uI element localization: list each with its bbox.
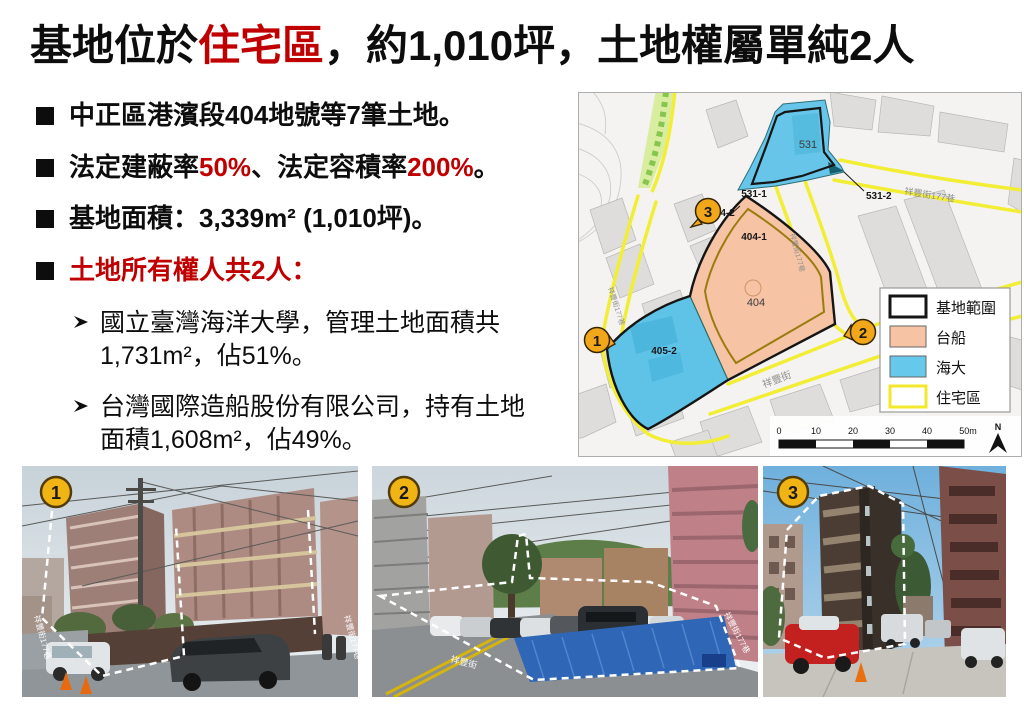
bullet-segment: 法定建蔽率 xyxy=(69,152,199,182)
label-405-2: 405-2 xyxy=(651,346,677,357)
label-404-1: 404-1 xyxy=(741,232,767,243)
scale-tick: 0 xyxy=(776,426,781,436)
title-part: 基地位於 xyxy=(30,22,198,69)
label-531: 531 xyxy=(799,139,817,151)
square-bullet-icon xyxy=(36,210,54,228)
scale-tick: 40 xyxy=(922,426,932,436)
photo-number-badge: 2 xyxy=(389,477,419,507)
arrow-bullet-icon xyxy=(72,397,90,457)
bullet-segment-red: 200% xyxy=(407,152,474,182)
photo-number-badge: 3 xyxy=(778,477,808,507)
legend-label: 海大 xyxy=(936,360,966,377)
sub-bullet-item-2: 台灣國際造船股份有限公司，持有土地 面積1,608m²，佔49%。 xyxy=(72,391,571,457)
legend-label: 住宅區 xyxy=(936,390,981,407)
street-photo-2: 祥豐街 祥豐街177巷 2 xyxy=(372,466,758,697)
square-bullet-icon xyxy=(36,262,54,280)
label-531-2: 531-2 xyxy=(866,191,892,202)
title-part: ，約1,010坪，土地權屬單純2人 xyxy=(324,22,914,69)
scale-tick: 50m xyxy=(959,426,977,436)
bullet-text: 土地所有權人共2人： xyxy=(69,255,317,286)
svg-text:N: N xyxy=(995,422,1002,432)
cadastral-map: 531 531-1 531-2 404-2 404-1 404 405-2 祥豐… xyxy=(578,92,1022,457)
slide: 基地位於住宅區，約1,010坪，土地權屬單純2人 中正區港濱段404地號等7筆土… xyxy=(0,0,1024,709)
legend-swatch-site xyxy=(890,296,926,317)
legend-label: 台船 xyxy=(936,330,966,347)
scale-bar: 0 10 20 30 40 50m N xyxy=(770,416,1022,457)
legend-swatch-csbc xyxy=(890,326,926,347)
bullet-item-2: 法定建蔽率50%、法定容積率200%。 xyxy=(36,152,571,183)
sub-bullet-line: 台灣國際造船股份有限公司，持有土地 xyxy=(100,393,525,421)
legend-label: 基地範圍 xyxy=(936,299,996,317)
bullet-segment: 基地面積：3,339m² (1,010坪)。 xyxy=(69,203,437,233)
scale-tick: 10 xyxy=(811,426,821,436)
arrow-bullet-icon xyxy=(72,313,90,373)
photo-number-badge: 1 xyxy=(41,477,71,507)
sub-bullet-line: 國立臺灣海洋大學，管理土地面積共 xyxy=(100,309,500,337)
sub-bullet-line: 面積1,608m²，佔49%。 xyxy=(100,426,367,454)
svg-text:3: 3 xyxy=(788,483,798,503)
sub-bullet-item-1: 國立臺灣海洋大學，管理土地面積共 1,731m²，佔51%。 xyxy=(72,307,571,373)
page-title: 基地位於住宅區，約1,010坪，土地權屬單純2人 xyxy=(30,12,915,73)
bullet-item-1: 中正區港濱段404地號等7筆土地。 xyxy=(36,100,571,131)
bullet-text: 法定建蔽率50%、法定容積率200%。 xyxy=(69,152,500,183)
bullet-segment: 中正區港濱段404地號等7筆土地。 xyxy=(69,100,465,130)
svg-text:1: 1 xyxy=(593,333,601,350)
svg-text:3: 3 xyxy=(704,204,712,221)
map-svg: 531 531-1 531-2 404-2 404-1 404 405-2 祥豐… xyxy=(578,92,1022,457)
bullet-segment: 。 xyxy=(474,152,500,182)
bullet-segment-red: 土地所有權人共2人： xyxy=(69,255,317,285)
legend-swatch-ntou xyxy=(890,356,926,377)
wall-sign xyxy=(702,654,726,667)
square-bullet-icon xyxy=(36,107,54,125)
svg-text:2: 2 xyxy=(859,325,867,342)
sub-bullet-text: 台灣國際造船股份有限公司，持有土地 面積1,608m²，佔49%。 xyxy=(100,391,525,457)
bullet-text: 基地面積：3,339m² (1,010坪)。 xyxy=(69,203,437,234)
label-404: 404 xyxy=(747,297,765,309)
bullet-item-4: 土地所有權人共2人： xyxy=(36,255,571,286)
street-photo-1: 祥豐街177巷 祥豐街177巷 1 xyxy=(22,466,358,697)
legend-swatch-residential xyxy=(890,386,926,407)
bullet-segment: 、法定容積率 xyxy=(251,152,407,182)
map-legend: 基地範圍 台船 海大 住宅區 xyxy=(880,288,1010,412)
label-531-1: 531-1 xyxy=(741,189,767,200)
svg-text:2: 2 xyxy=(399,483,409,503)
sub-bullet-line: 1,731m²，佔51%。 xyxy=(100,342,317,370)
title-highlight: 住宅區 xyxy=(198,22,324,69)
bullet-item-3: 基地面積：3,339m² (1,010坪)。 xyxy=(36,203,571,234)
scale-tick: 20 xyxy=(848,426,858,436)
bullet-text: 中正區港濱段404地號等7筆土地。 xyxy=(69,100,465,131)
sub-bullet-text: 國立臺灣海洋大學，管理土地面積共 1,731m²，佔51%。 xyxy=(100,307,500,373)
svg-text:1: 1 xyxy=(51,483,61,503)
square-bullet-icon xyxy=(36,159,54,177)
scale-tick: 30 xyxy=(885,426,895,436)
bullet-list: 中正區港濱段404地號等7筆土地。 法定建蔽率50%、法定容積率200%。 基地… xyxy=(36,100,571,475)
street-photo-3: 3 xyxy=(763,466,1006,697)
bullet-segment-red: 50% xyxy=(199,152,251,182)
